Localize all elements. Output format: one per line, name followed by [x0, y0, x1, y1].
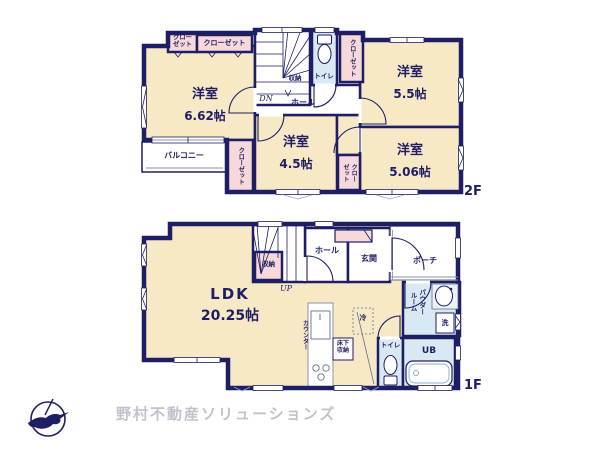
storage-2f-label: 収納 [282, 75, 308, 82]
toilet-2f-label: トイレ [310, 73, 338, 80]
room-506-name: 洋室 [370, 144, 450, 159]
floorplan-page: { "colors": { "wall": "#1e1e64", "room_f… [0, 0, 600, 450]
closet-e-label: クローゼット [339, 162, 359, 184]
closet-c-label: クローゼット [342, 35, 361, 81]
toilet-icon-1f [384, 356, 397, 386]
stairs-up-label: UP [276, 284, 296, 293]
room-55-name: 洋室 [370, 66, 450, 81]
nomura-bird-logo-icon [22, 392, 74, 444]
washer-label: 洗 [436, 319, 454, 327]
room-662-size: 6.62帖 [165, 110, 245, 124]
room-45-size: 4.5帖 [256, 158, 336, 172]
porch [390, 226, 458, 280]
closet-d-label: クローゼット [230, 143, 250, 189]
room-662-name: 洋室 [165, 88, 245, 103]
floor1-tag: 1F [464, 378, 482, 393]
entrance-label: 玄関 [344, 254, 394, 263]
toilet-icon-2f [318, 35, 332, 64]
ldk-size: 20.25帖 [180, 308, 280, 324]
room-506-size: 5.06帖 [370, 166, 450, 180]
stairs-dn-label: DN [256, 94, 276, 103]
unit-bath-label: UB [404, 346, 454, 356]
storage-1f-label: 収納 [255, 261, 282, 268]
ldk-name: LDK [190, 286, 270, 303]
closet-b-label: クローゼット [197, 39, 252, 47]
bathtub-icon [406, 361, 452, 386]
room-45-name: 洋室 [256, 136, 336, 151]
balcony-label: バルコニー [154, 151, 214, 160]
room-55-size: 5.5帖 [370, 88, 450, 102]
counter-label: カウンター [300, 312, 309, 358]
underfloor-storage-label: 床下収納 [336, 341, 350, 355]
floor2-tag: 2F [464, 184, 482, 199]
company-name: 野村不動産ソリューションズ [116, 403, 336, 424]
washbasin-icon [432, 284, 458, 309]
powder-room-label: パウダールーム [406, 288, 428, 316]
fridge-label: 冷 [353, 314, 373, 322]
kitchen-counter [308, 303, 333, 388]
floor-plan-1f: LDK 20.25帖 収納 UP ホール 玄関 ポーチ パウダールーム 洗 トイ… [138, 218, 468, 394]
porch-label: ポーチ [395, 256, 455, 265]
floor-plan-2f: 洋室 6.62帖 洋室 5.5帖 洋室 4.5帖 洋室 5.06帖 クローゼット… [138, 26, 468, 201]
shoe-cabinet [335, 230, 372, 242]
closet-a-label: クローゼット [171, 34, 194, 48]
hall-2f-label: ホール [273, 98, 333, 107]
